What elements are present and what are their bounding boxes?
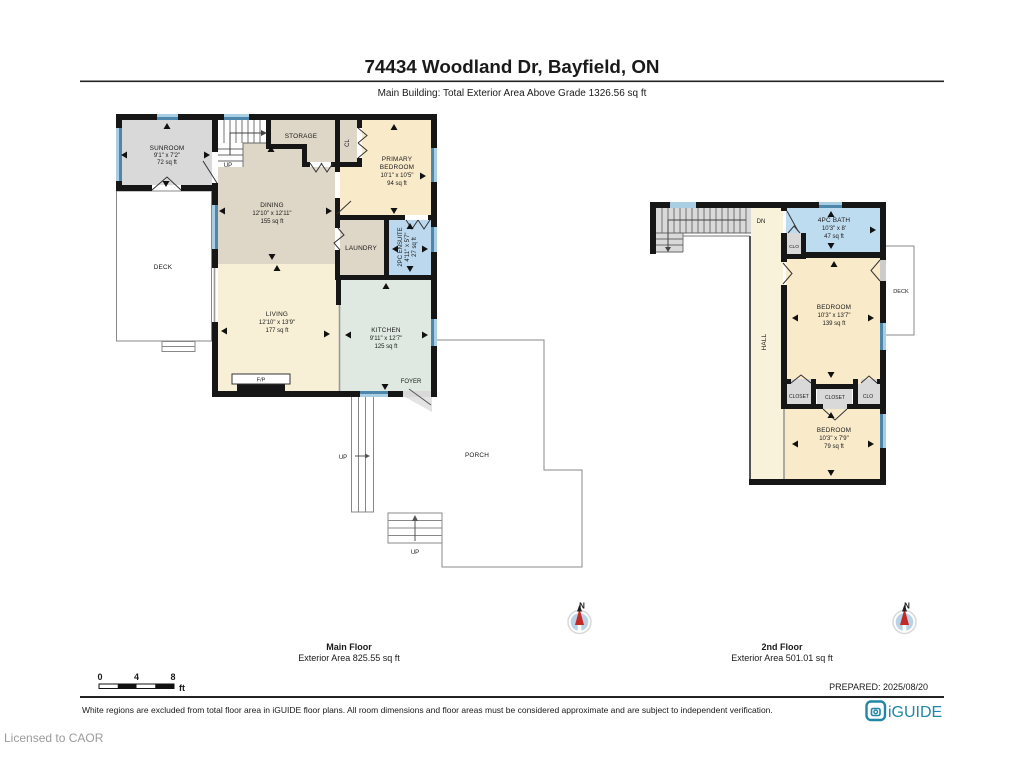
svg-text:Licensed to CAOR: Licensed to CAOR	[4, 731, 104, 745]
svg-text:12'10" x 13'9": 12'10" x 13'9"	[259, 320, 295, 326]
svg-text:KITCHEN: KITCHEN	[371, 327, 401, 334]
svg-text:N: N	[579, 602, 585, 611]
svg-text:CLOSET: CLOSET	[825, 395, 845, 401]
svg-text:PORCH: PORCH	[465, 452, 489, 459]
svg-text:ft: ft	[179, 683, 185, 693]
svg-text:8: 8	[170, 672, 175, 682]
svg-text:CLO: CLO	[863, 394, 873, 400]
svg-text:DN: DN	[757, 219, 766, 225]
svg-text:Exterior Area 501.01 sq ft: Exterior Area 501.01 sq ft	[731, 653, 833, 663]
svg-text:139 sq ft: 139 sq ft	[822, 321, 845, 327]
svg-text:0: 0	[97, 672, 102, 682]
svg-text:125 sq ft: 125 sq ft	[374, 344, 397, 350]
svg-text:SUNROOM: SUNROOM	[150, 145, 185, 152]
svg-text:PRIMARY: PRIMARY	[382, 156, 413, 163]
svg-text:177 sq ft: 177 sq ft	[265, 328, 288, 334]
svg-text:N: N	[904, 602, 910, 611]
svg-text:94 sq ft: 94 sq ft	[387, 181, 407, 187]
svg-text:2nd Floor: 2nd Floor	[762, 642, 803, 652]
svg-text:Exterior Area 825.55 sq ft: Exterior Area 825.55 sq ft	[298, 653, 400, 663]
svg-text:72 sq ft: 72 sq ft	[157, 160, 177, 166]
svg-text:UP: UP	[411, 550, 419, 556]
svg-text:F/P: F/P	[257, 378, 266, 384]
svg-text:FOYER: FOYER	[401, 379, 422, 385]
svg-text:2PC ENSUITE: 2PC ENSUITE	[398, 227, 404, 266]
svg-text:iGUIDE: iGUIDE	[888, 704, 942, 721]
svg-text:BEDROOM: BEDROOM	[817, 304, 851, 311]
svg-text:47 sq ft: 47 sq ft	[824, 234, 844, 240]
svg-text:UP: UP	[224, 163, 232, 169]
svg-text:LIVING: LIVING	[266, 311, 288, 318]
svg-text:DINING: DINING	[260, 202, 284, 209]
svg-text:4'11" x 5'7": 4'11" x 5'7"	[405, 232, 411, 261]
svg-text:CL: CL	[345, 139, 351, 147]
svg-text:BEDROOM: BEDROOM	[817, 427, 851, 434]
svg-text:10'3" x 13'7": 10'3" x 13'7"	[818, 313, 851, 319]
svg-text:White regions are excluded fro: White regions are excluded from total fl…	[82, 705, 773, 715]
svg-text:DECK: DECK	[893, 289, 909, 295]
svg-text:79 sq ft: 79 sq ft	[824, 444, 844, 450]
svg-text:HALL: HALL	[761, 333, 768, 350]
svg-text:9'1" x 7'2": 9'1" x 7'2"	[154, 153, 180, 159]
svg-text:Main Floor: Main Floor	[326, 642, 372, 652]
svg-text:STORAGE: STORAGE	[285, 133, 318, 140]
svg-text:BEDROOM: BEDROOM	[380, 164, 414, 171]
svg-text:27 sq ft: 27 sq ft	[412, 237, 418, 257]
svg-text:UP: UP	[339, 455, 347, 461]
svg-text:10'3" x 7'9": 10'3" x 7'9"	[819, 436, 849, 442]
svg-text:PREPARED: 2025/08/20: PREPARED: 2025/08/20	[829, 682, 928, 692]
svg-text:CLO: CLO	[789, 244, 799, 250]
svg-text:LAUNDRY: LAUNDRY	[345, 245, 377, 252]
svg-text:4: 4	[134, 672, 139, 682]
svg-text:9'11" x 12'7": 9'11" x 12'7"	[370, 336, 402, 342]
svg-text:12'10" x 12'11": 12'10" x 12'11"	[252, 211, 291, 217]
svg-text:4PC BATH: 4PC BATH	[818, 217, 851, 224]
svg-text:Main Building: Total Exterior: Main Building: Total Exterior Area Above…	[378, 88, 647, 99]
svg-text:155 sq ft: 155 sq ft	[260, 219, 283, 225]
svg-text:10'1" x 10'5": 10'1" x 10'5"	[381, 173, 414, 179]
svg-text:CLOSET: CLOSET	[789, 394, 809, 400]
svg-text:DECK: DECK	[154, 264, 173, 271]
svg-text:74434 Woodland Dr, Bayfield, O: 74434 Woodland Dr, Bayfield, ON	[364, 56, 659, 77]
svg-text:10'3" x 8': 10'3" x 8'	[822, 226, 846, 232]
